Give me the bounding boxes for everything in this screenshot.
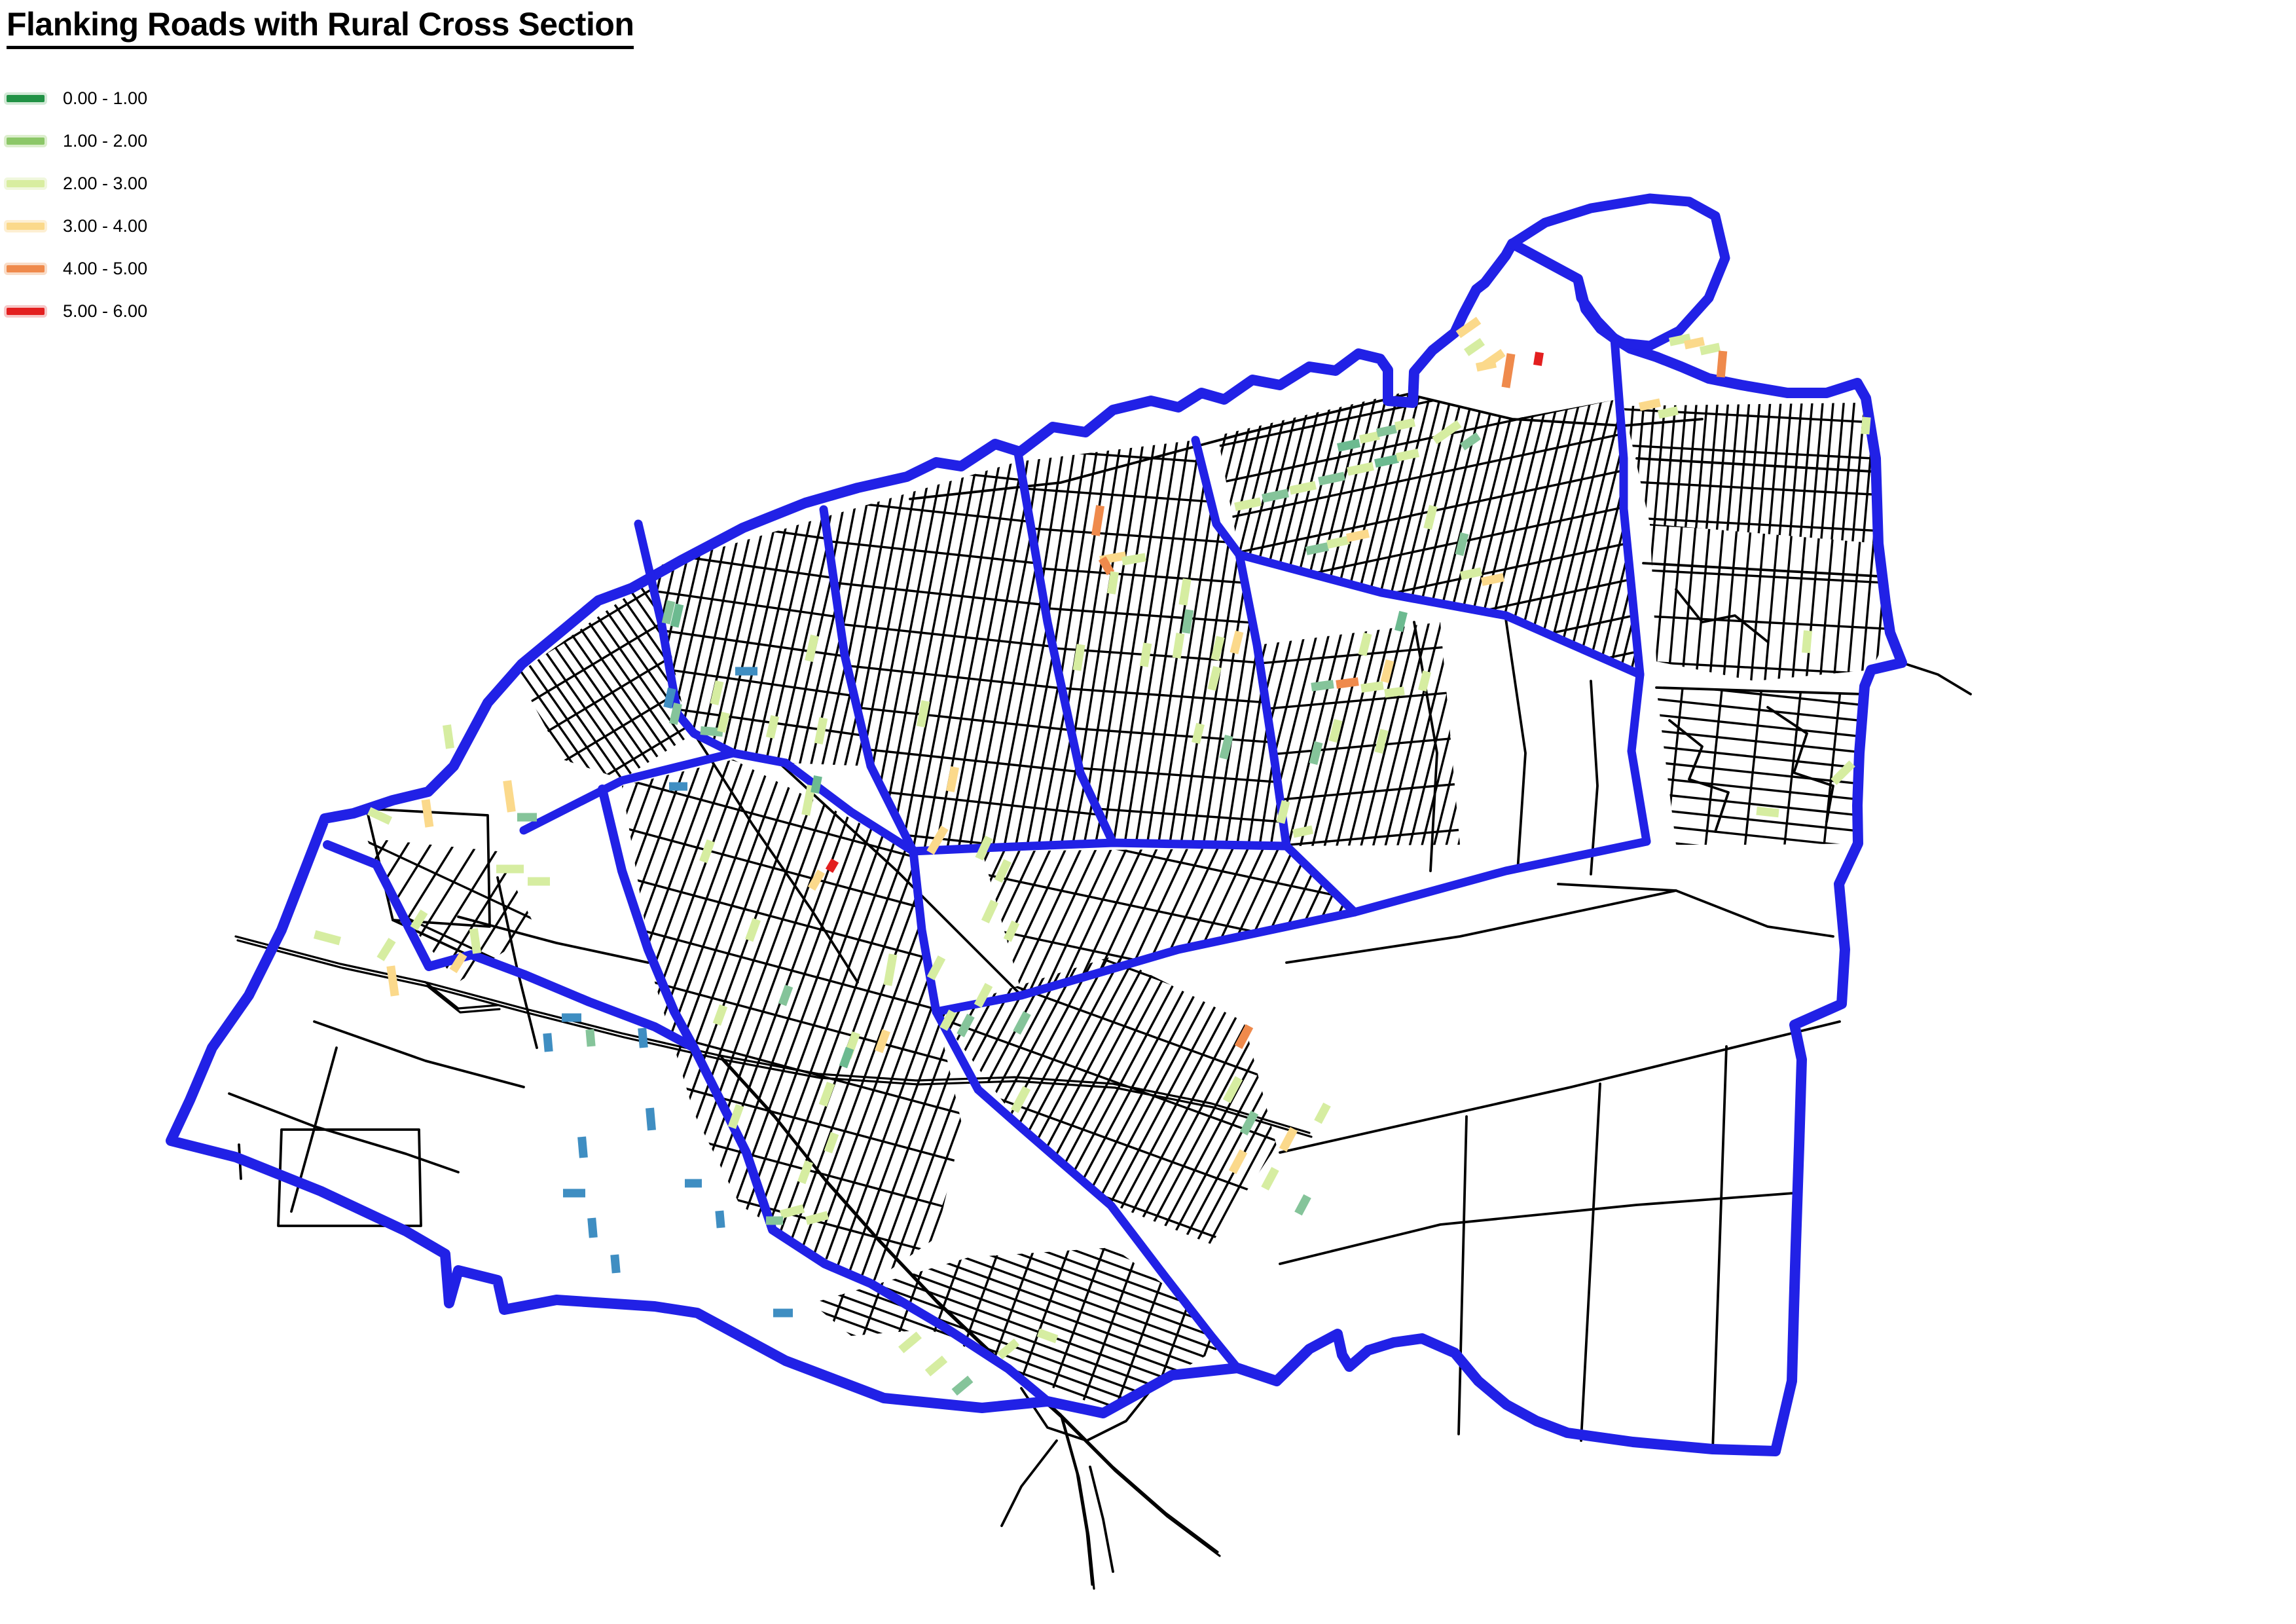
legend: 0.00 - 1.00 1.00 - 2.00 2.00 - 3.00 3.00… bbox=[7, 77, 147, 333]
legend-swatch bbox=[7, 180, 45, 187]
legend-swatch bbox=[7, 223, 45, 230]
legend-swatch bbox=[7, 95, 45, 102]
legend-swatch bbox=[7, 138, 45, 145]
page-title: Flanking Roads with Rural Cross Section bbox=[7, 5, 634, 49]
legend-item: 3.00 - 4.00 bbox=[7, 205, 147, 248]
legend-item: 0.00 - 1.00 bbox=[7, 77, 147, 120]
road-map-canvas bbox=[0, 0, 2296, 1624]
legend-label: 5.00 - 6.00 bbox=[63, 301, 147, 322]
legend-label: 1.00 - 2.00 bbox=[63, 131, 147, 151]
map-page: Flanking Roads with Rural Cross Section … bbox=[0, 0, 2296, 1624]
legend-label: 4.00 - 5.00 bbox=[63, 259, 147, 279]
legend-swatch bbox=[7, 308, 45, 315]
legend-label: 2.00 - 3.00 bbox=[63, 174, 147, 194]
legend-item: 2.00 - 3.00 bbox=[7, 162, 147, 205]
legend-item: 1.00 - 2.00 bbox=[7, 120, 147, 162]
legend-label: 3.00 - 4.00 bbox=[63, 216, 147, 236]
legend-label: 0.00 - 1.00 bbox=[63, 88, 147, 109]
legend-swatch bbox=[7, 265, 45, 272]
legend-item: 5.00 - 6.00 bbox=[7, 290, 147, 333]
legend-item: 4.00 - 5.00 bbox=[7, 248, 147, 290]
